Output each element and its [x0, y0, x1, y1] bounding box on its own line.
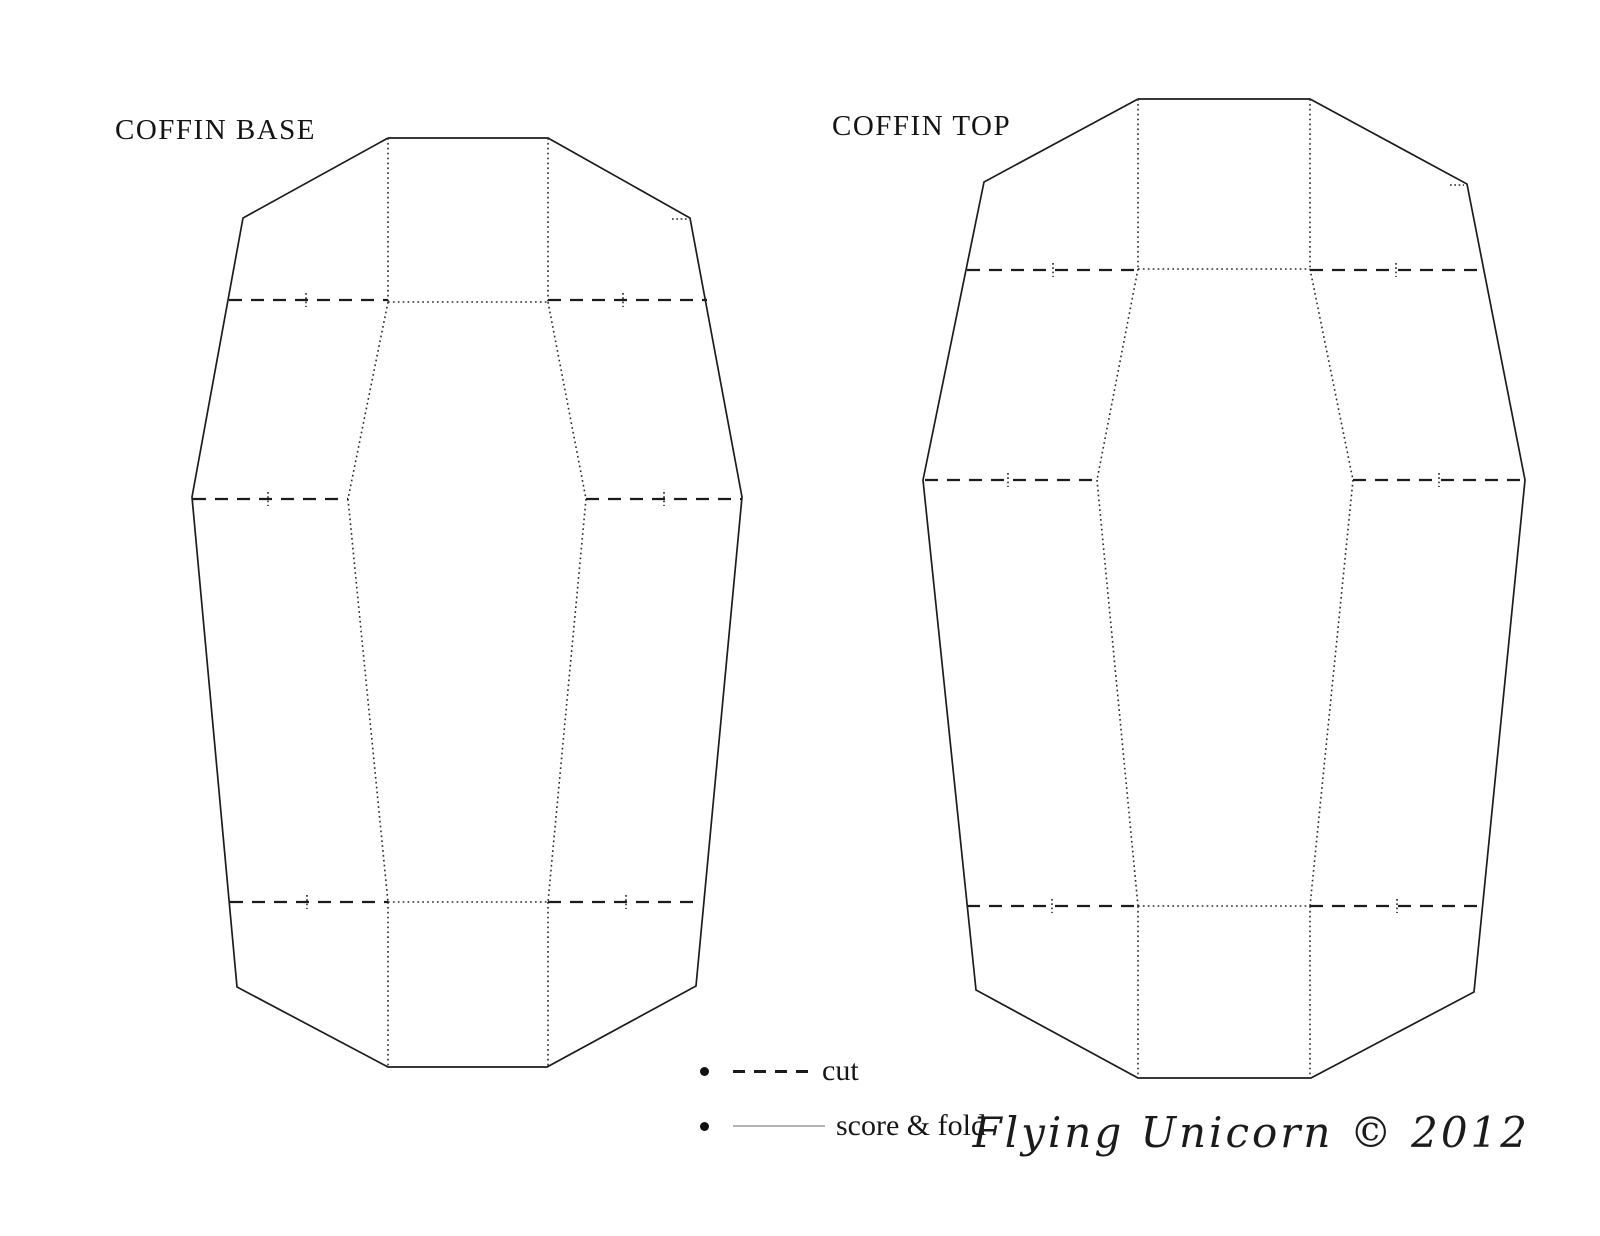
coffin-template-diagram — [0, 0, 1600, 1236]
cut-line-sample — [733, 1070, 811, 1073]
legend-item-cut: cut — [700, 1054, 859, 1088]
template-page: COFFIN BASE COFFIN TOP cut score & fold … — [0, 0, 1600, 1236]
coffin-top-fold-line — [1310, 269, 1353, 480]
legend-item-score-fold: score & fold — [700, 1109, 986, 1143]
coffin-top-fold-line — [1097, 480, 1138, 906]
coffin-base-title: COFFIN BASE — [115, 114, 316, 147]
coffin-base-fold-line — [348, 499, 388, 902]
coffin-base-fold-line — [348, 302, 388, 499]
coffin-top-title: COFFIN TOP — [832, 110, 1011, 143]
bullet-icon — [700, 1122, 709, 1131]
legend-label-score-fold: score & fold — [836, 1109, 986, 1143]
coffin-base-fold-line — [548, 302, 586, 499]
signature: Flying Unicorn © 2012 — [973, 1108, 1530, 1157]
coffin-base-outline — [192, 138, 742, 1067]
coffin-base-fold-line — [548, 499, 586, 902]
score-fold-line-sample — [733, 1125, 825, 1127]
coffin-top-fold-line — [1097, 269, 1138, 480]
coffin-top-fold-line — [1310, 480, 1353, 906]
bullet-icon — [700, 1067, 709, 1076]
legend-label-cut: cut — [822, 1054, 859, 1088]
coffin-top-outline — [923, 99, 1525, 1078]
